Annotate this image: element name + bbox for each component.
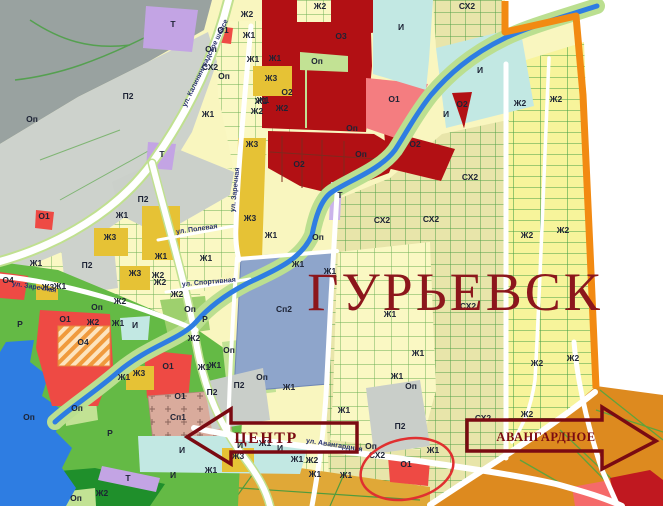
zone-label: Ж1 xyxy=(290,454,304,464)
zone-label: Ж2 xyxy=(556,225,570,235)
zone-label: Ж2 xyxy=(513,98,527,108)
zone-label: Ж1 xyxy=(242,30,256,40)
zone-label: И xyxy=(398,22,404,32)
zone-label: Ж1 xyxy=(29,258,43,268)
zone-label: Сп2 xyxy=(276,304,292,314)
zone-label: Ж1 xyxy=(426,445,440,455)
zone-label: Ж2 xyxy=(187,333,201,343)
zone-label: Оп xyxy=(26,114,38,124)
zone-label: Оп xyxy=(70,493,82,503)
zone-label: Ж2 xyxy=(275,103,289,113)
zone-label: Ж2 xyxy=(86,317,100,327)
zone-label: Ж2 xyxy=(530,358,544,368)
zone-label: Оп xyxy=(23,412,35,422)
zone-label: Ж1 xyxy=(246,54,260,64)
zone-label: Ж1 xyxy=(264,230,278,240)
zone-label: Оп xyxy=(71,403,83,413)
zone-label: Ж1 xyxy=(337,405,351,415)
zone-label: Оп xyxy=(311,56,323,66)
zone-label: П2 xyxy=(395,421,406,431)
avangardnoe-arrow-label: АВАНГАРДНОЕ xyxy=(496,430,595,444)
zone-label: Ж2 xyxy=(153,277,167,287)
zone-label: И xyxy=(179,445,185,455)
zone-label: Ж2 xyxy=(240,9,254,19)
zone-label: СХ2 xyxy=(462,172,478,182)
zone-label: И xyxy=(477,65,483,75)
zone-label: Ж1 xyxy=(282,382,296,392)
zone-label: Ж1 xyxy=(256,95,270,105)
zone-label: Оп xyxy=(184,304,196,314)
zone-label: О1 xyxy=(174,391,186,401)
zone-label: И xyxy=(170,470,176,480)
zone-label: И xyxy=(132,320,138,330)
zone-label: Оп xyxy=(256,372,268,382)
zone-label: О2 xyxy=(293,159,305,169)
zone-label: Ж2 xyxy=(250,106,264,116)
zone-label: Ж1 xyxy=(390,371,404,381)
zone-label: Оп xyxy=(223,345,235,355)
zone-label: О2 xyxy=(456,99,468,109)
zone-label: Т xyxy=(337,190,343,200)
zone-label: Ж1 xyxy=(204,465,218,475)
zone-label: Ж1 xyxy=(208,360,222,370)
zone-label: Ж1 xyxy=(117,372,131,382)
zone-label: Оп xyxy=(91,302,103,312)
zone-label: Ж2 xyxy=(95,488,109,498)
zone-label: СХ2 xyxy=(374,215,390,225)
zone-label: Ж1 xyxy=(268,53,282,63)
zone-label: Сп1 xyxy=(170,412,186,422)
zone-label: Ж1 xyxy=(411,348,425,358)
zone-label: П2 xyxy=(82,260,93,270)
zone-label: Р xyxy=(107,428,113,438)
zone-label: Оп xyxy=(218,71,230,81)
zone-label: Ж2 xyxy=(566,353,580,363)
zone-label: Ж3 xyxy=(103,232,117,242)
zone-label: Ж3 xyxy=(264,73,278,83)
zone-label: Ж2 xyxy=(520,230,534,240)
zone-label: Оп xyxy=(405,381,417,391)
zone-label: Ж3 xyxy=(132,368,146,378)
zone-label: О1 xyxy=(59,314,71,324)
zone-label: Ж1 xyxy=(154,251,168,261)
zone-label: П2 xyxy=(207,387,218,397)
zone-label: Ж1 xyxy=(111,318,125,328)
zone-label: СХ2 xyxy=(423,214,439,224)
zone-label: СХ2 xyxy=(459,1,475,11)
zone-label: Ж1 xyxy=(291,259,305,269)
zone-label: Оп xyxy=(346,123,358,133)
zone-label: Ж3 xyxy=(243,213,257,223)
zone-label: Ж3 xyxy=(128,268,142,278)
zone-label: Т xyxy=(170,19,176,29)
zoning-map-svg: ТЖ2Ж1О1ОпСХ2ОпЖ1Ж1Ж3Ж1Ж2Ж2Ж1П2ОпТЖ2О3ОпО… xyxy=(0,0,663,506)
zone-label: Ж2 xyxy=(549,94,563,104)
zone-label: Ж1 xyxy=(115,210,129,220)
zone-label: Ж2 xyxy=(305,455,319,465)
zone-label: Р xyxy=(17,319,23,329)
zone-label: Ж1 xyxy=(201,109,215,119)
zone-label: Ж3 xyxy=(245,139,259,149)
zone-label: О1 xyxy=(162,361,174,371)
zone-label: Т xyxy=(159,149,165,159)
zone-label: П2 xyxy=(123,91,134,101)
zone-label: И xyxy=(443,109,449,119)
zone-label: Ж2 xyxy=(113,296,127,306)
zone-label: П2 xyxy=(234,380,245,390)
zone-label: О1 xyxy=(400,459,412,469)
zone-label: Ж1 xyxy=(339,470,353,480)
zone-label: О4 xyxy=(77,337,89,347)
zone-label: Ж1 xyxy=(308,469,322,479)
zone-label: Т xyxy=(125,473,131,483)
zone-label: О1 xyxy=(38,211,50,221)
zone-label: Р xyxy=(202,314,208,324)
zone-label: Ж1 xyxy=(199,253,213,263)
zone-label: О1 xyxy=(388,94,400,104)
zone-label: П2 xyxy=(138,194,149,204)
zone-label: О3 xyxy=(335,31,347,41)
zone-label: Оп xyxy=(312,232,324,242)
zone-label: Ж2 xyxy=(520,409,534,419)
city-title: ГУРЬЕВСК xyxy=(307,262,603,322)
zone-label: О2 xyxy=(409,139,421,149)
zone-label: Ж2 xyxy=(313,1,327,11)
zone-label: Оп xyxy=(355,149,367,159)
zone-label: Ж2 xyxy=(170,289,184,299)
map-canvas[interactable]: ТЖ2Ж1О1ОпСХ2ОпЖ1Ж1Ж3Ж1Ж2Ж2Ж1П2ОпТЖ2О3ОпО… xyxy=(0,0,663,506)
center-arrow-label: ЦЕНТР xyxy=(234,430,298,447)
zone-label: О2 xyxy=(281,87,293,97)
